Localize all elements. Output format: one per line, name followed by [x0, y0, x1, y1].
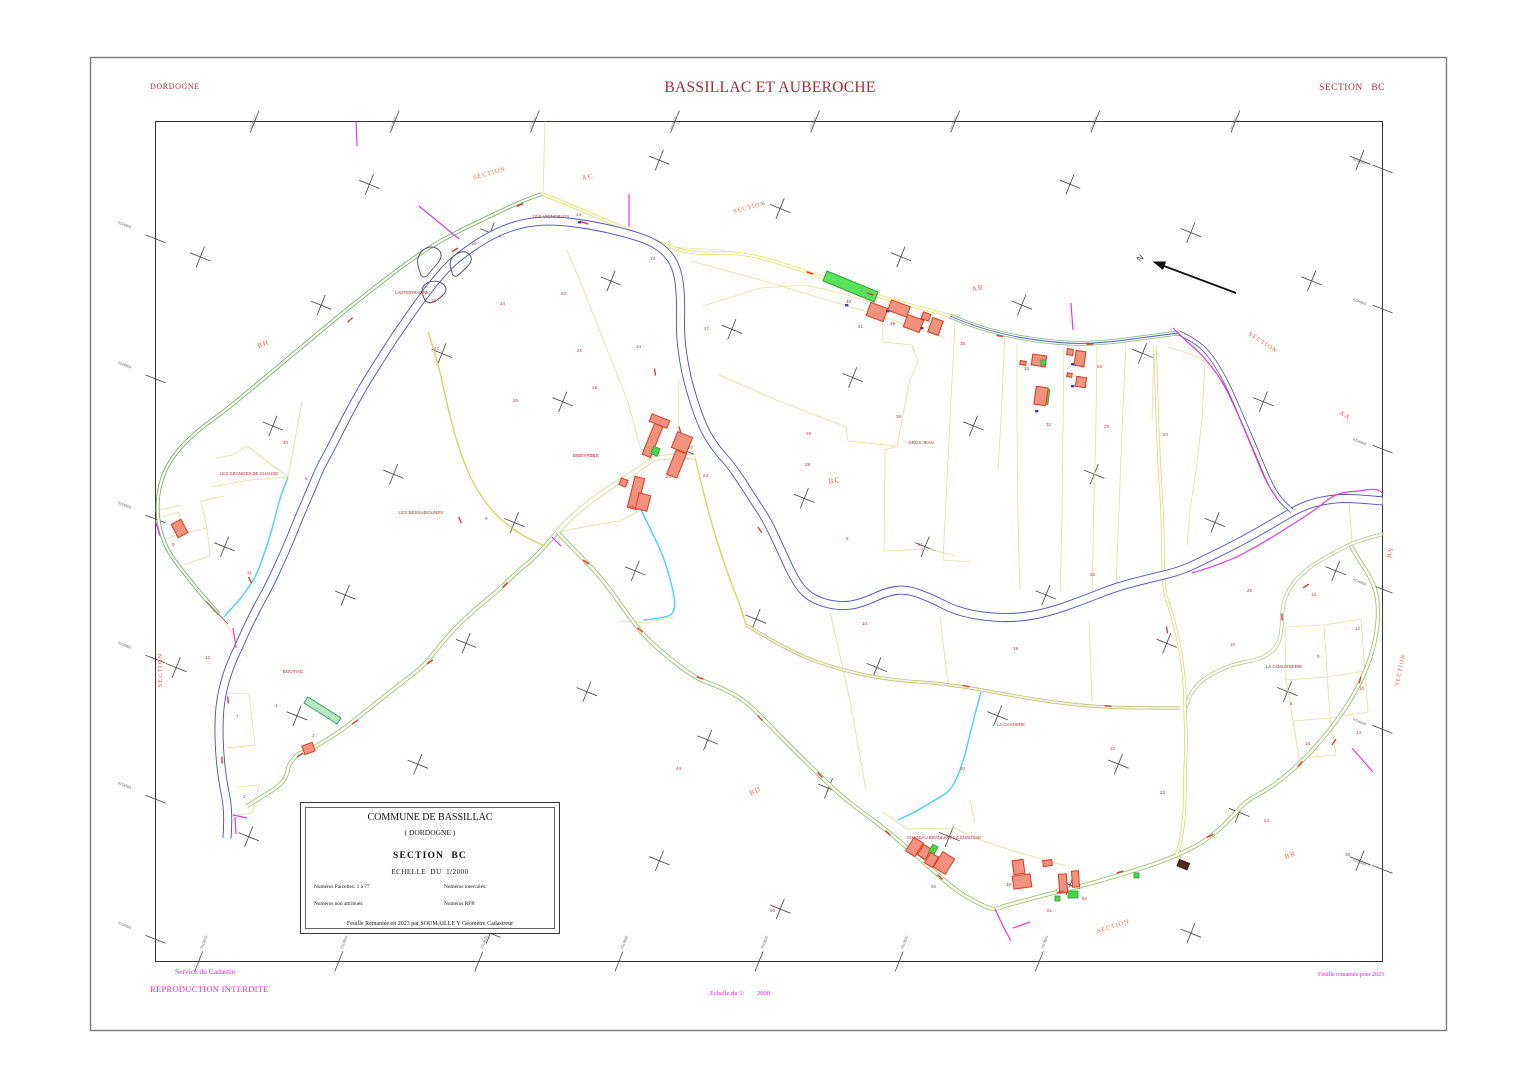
svg-text:19: 19 — [592, 385, 598, 390]
svg-text:60: 60 — [770, 908, 776, 913]
svg-text:28: 28 — [805, 462, 811, 467]
svg-text:DORDOGNE: DORDOGNE — [150, 82, 200, 91]
svg-text:32: 32 — [1046, 422, 1052, 427]
svg-text:12: 12 — [1355, 626, 1361, 631]
svg-text:16: 16 — [1311, 592, 1317, 597]
svg-text:LA CHATIERE: LA CHATIERE — [997, 722, 1025, 727]
svg-text:10: 10 — [862, 621, 868, 626]
svg-text:24: 24 — [1264, 818, 1270, 823]
svg-text:23: 23 — [703, 473, 709, 478]
svg-text:20: 20 — [960, 766, 966, 771]
svg-text:40: 40 — [846, 299, 852, 304]
svg-text:BOUTIAC: BOUTIAC — [283, 669, 304, 674]
svg-text:23: 23 — [561, 291, 567, 296]
svg-text:35: 35 — [960, 341, 966, 346]
svg-text:55: 55 — [931, 884, 937, 889]
svg-text:REPRODUCTION INTERDITE: REPRODUCTION INTERDITE — [150, 984, 269, 994]
svg-text:BIBEYROLE: BIBEYROLE — [573, 453, 599, 458]
svg-text:ECHELLE DU 1/2000: ECHELLE DU 1/2000 — [391, 868, 468, 876]
svg-text:38: 38 — [1345, 852, 1351, 857]
svg-text:10: 10 — [1359, 686, 1365, 691]
svg-text:14: 14 — [1356, 730, 1362, 735]
svg-text:LES BESSADOUNES: LES BESSADOUNES — [399, 510, 444, 515]
svg-text:Feuille remaniée pour 2023: Feuille remaniée pour 2023 — [1318, 972, 1384, 978]
svg-text:22: 22 — [1110, 746, 1116, 751]
svg-text:11: 11 — [247, 570, 252, 575]
svg-text:LES VIGNOBLES: LES VIGNOBLES — [533, 214, 570, 219]
svg-text:SECTION BC: SECTION BC — [1319, 83, 1385, 93]
svg-text:Numéros non attribués:: Numéros non attribués: — [314, 901, 364, 907]
svg-text:27: 27 — [688, 445, 694, 450]
svg-text:16: 16 — [431, 298, 437, 303]
svg-text:25: 25 — [577, 348, 583, 353]
svg-text:36: 36 — [896, 414, 902, 419]
svg-text:26: 26 — [1090, 572, 1096, 577]
svg-text:CHATEAU BRANLANT LA CHAUSSE: CHATEAU BRANLANT LA CHAUSSE — [907, 835, 981, 840]
svg-text:17: 17 — [704, 326, 710, 331]
svg-text:49: 49 — [1006, 882, 1012, 887]
svg-text:33: 33 — [1024, 366, 1030, 371]
svg-text:Echelle du 1/: Echelle du 1/ — [710, 990, 744, 997]
svg-text:( DORDOGNE ): ( DORDOGNE ) — [405, 828, 456, 837]
svg-text:BASSILLAC ET AUBEROCHE: BASSILLAC ET AUBEROCHE — [664, 79, 875, 96]
svg-text:44: 44 — [676, 766, 682, 771]
svg-text:Feuille Remaniée en 2023 par S: Feuille Remaniée en 2023 par SOUMAILLE Y… — [347, 921, 513, 927]
svg-text:23: 23 — [1160, 790, 1166, 795]
svg-text:39: 39 — [890, 321, 896, 326]
svg-text:LAETIERRAGNE: LAETIERRAGNE — [395, 290, 429, 295]
svg-text:29: 29 — [806, 431, 812, 436]
svg-text:41: 41 — [858, 324, 864, 329]
svg-text:SECTION: SECTION — [157, 653, 164, 687]
svg-text:COMMUNE DE BASSILLAC: COMMUNE DE BASSILLAC — [367, 812, 492, 823]
svg-text:25: 25 — [1104, 424, 1110, 429]
svg-text:Numéros RFP:: Numéros RFP: — [444, 901, 476, 907]
svg-text:21: 21 — [918, 542, 924, 547]
svg-text:Service du Cadastre: Service du Cadastre — [175, 967, 236, 976]
svg-text:51: 51 — [1047, 908, 1053, 913]
svg-text:LES GRANGES DE CHAUSE: LES GRANGES DE CHAUSE — [220, 471, 278, 476]
svg-text:2000: 2000 — [757, 990, 770, 997]
svg-text:28: 28 — [1247, 588, 1253, 593]
svg-text:27: 27 — [434, 346, 440, 351]
svg-text:14: 14 — [636, 344, 642, 349]
svg-text:15: 15 — [1230, 642, 1236, 647]
svg-text:28: 28 — [629, 504, 635, 509]
svg-text:Numéros Parcelles: 1 à 77: Numéros Parcelles: 1 à 77 — [314, 884, 370, 890]
svg-text:33: 33 — [283, 440, 289, 445]
svg-text:Numéros intercalés:: Numéros intercalés: — [444, 884, 487, 890]
svg-text:12: 12 — [205, 655, 211, 660]
svg-text:24: 24 — [666, 474, 672, 479]
svg-text:18: 18 — [1013, 646, 1019, 651]
svg-text:LA CHAUSSERIE: LA CHAUSSERIE — [1266, 664, 1303, 669]
svg-text:24: 24 — [1163, 432, 1169, 437]
svg-text:18: 18 — [1305, 741, 1311, 746]
svg-text:14: 14 — [576, 212, 582, 217]
svg-text:18: 18 — [471, 241, 477, 246]
svg-text:SECTION BC: SECTION BC — [393, 851, 467, 861]
svg-text:24: 24 — [500, 301, 506, 306]
svg-text:52: 52 — [1082, 896, 1088, 901]
svg-text:13: 13 — [650, 256, 656, 261]
svg-text:26: 26 — [1097, 364, 1103, 369]
svg-text:GROS JEAN: GROS JEAN — [908, 440, 933, 445]
svg-text:26: 26 — [513, 398, 519, 403]
